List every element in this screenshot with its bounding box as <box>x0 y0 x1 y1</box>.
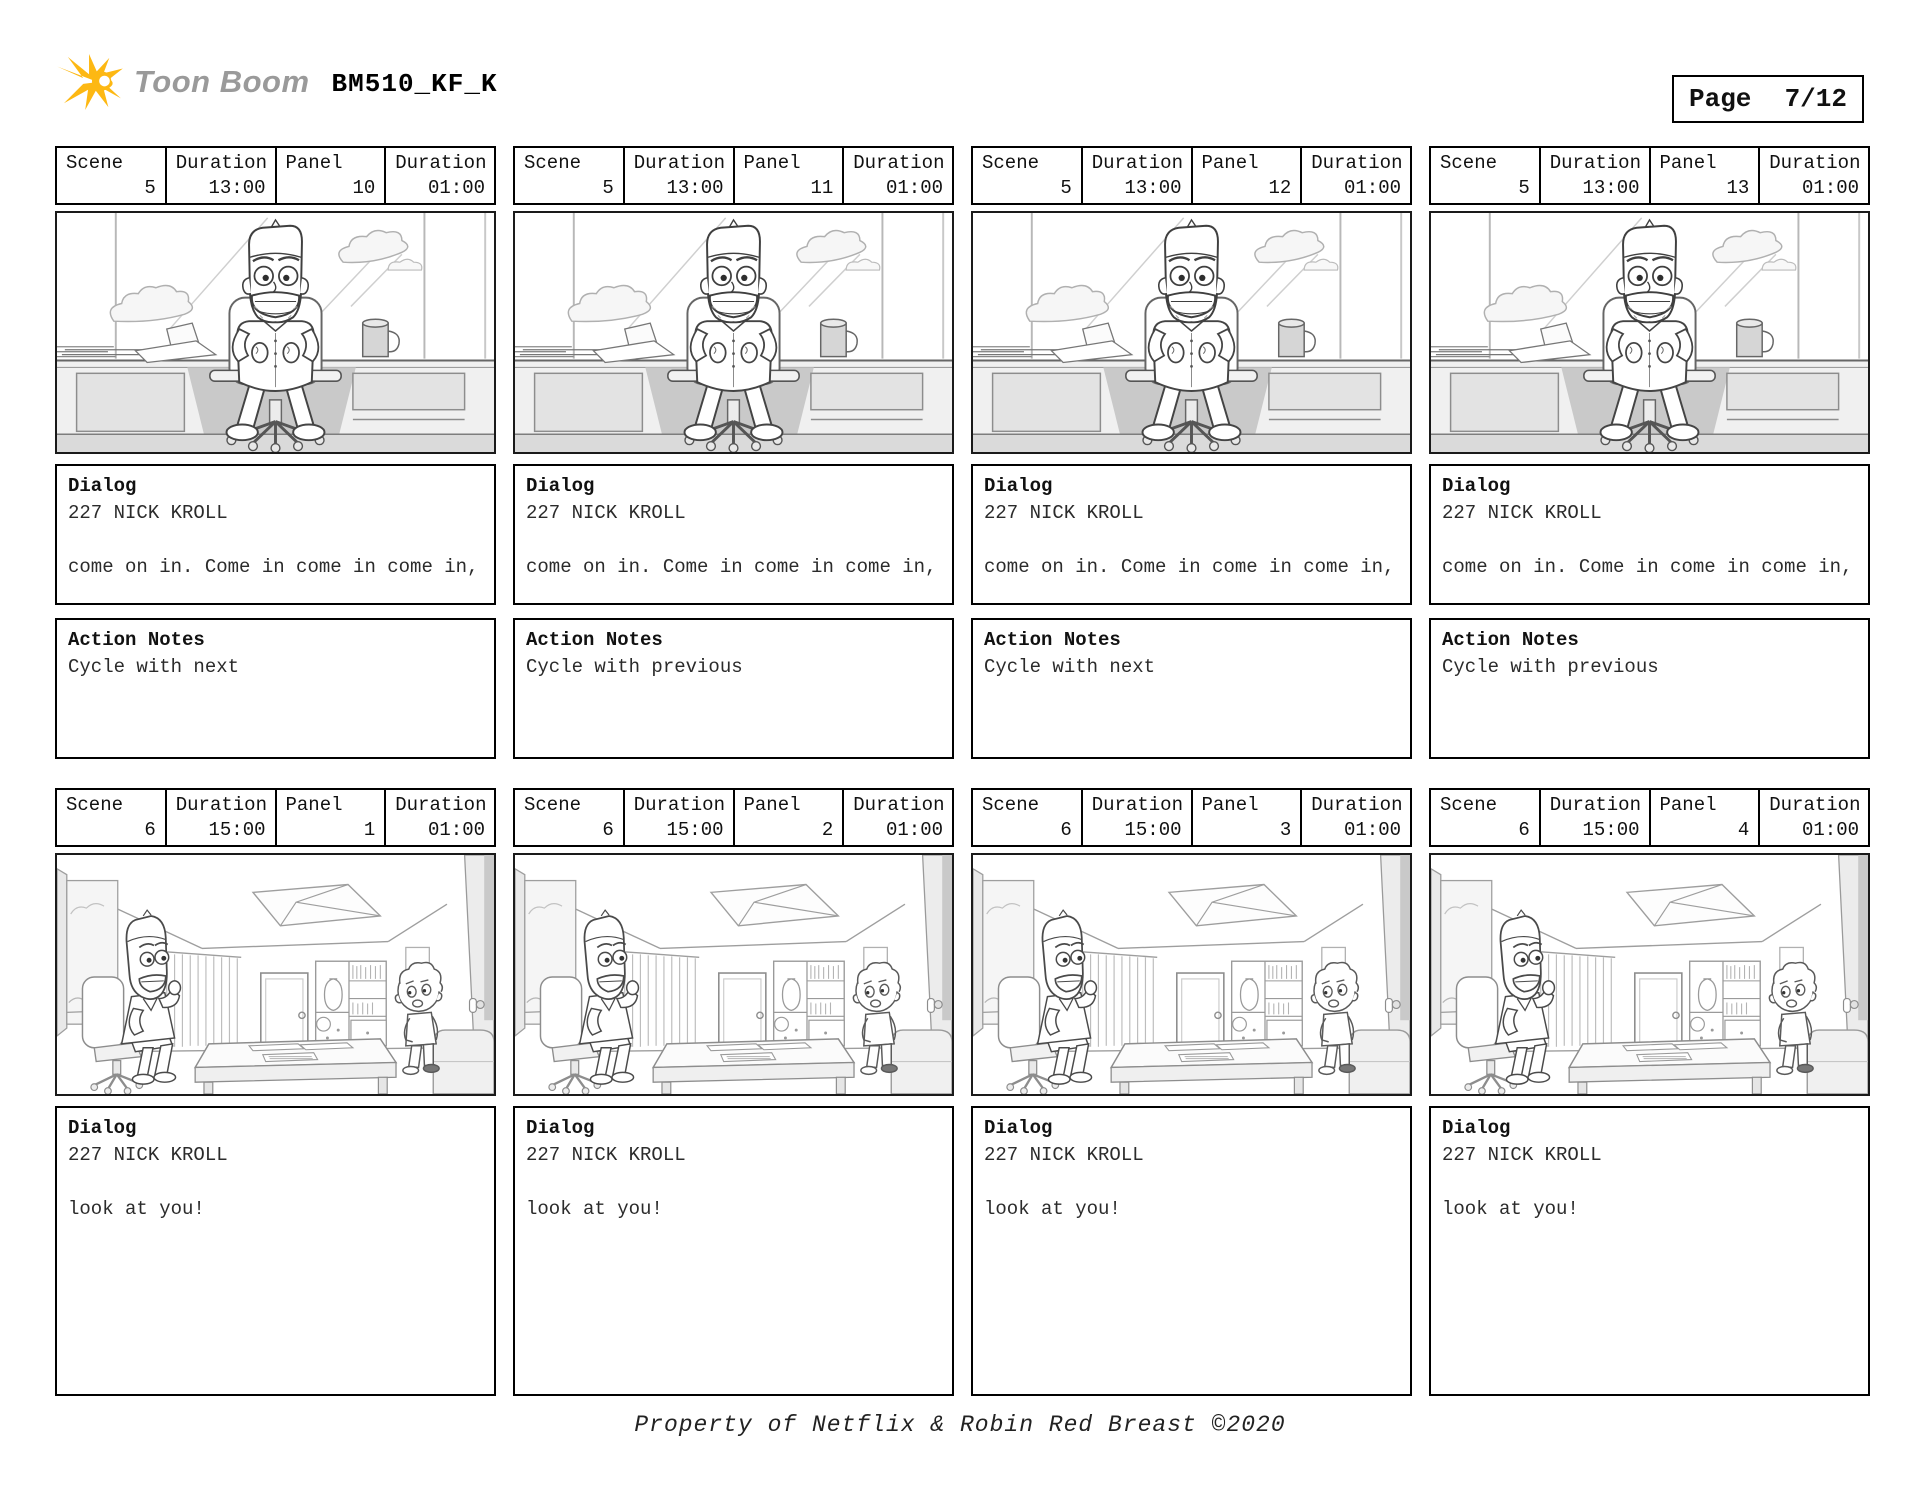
dialog-box: Dialog 227 NICK KROLL come on in. Come i… <box>971 464 1412 605</box>
action-notes-box: Action Notes Cycle with previous <box>1429 618 1870 759</box>
dialog-label: Dialog <box>526 473 941 500</box>
dialog-box: Dialog 227 NICK KROLL look at you! <box>1429 1106 1870 1396</box>
panel-meta-table: Scene 6 Duration 15:00 Panel 3 Duration … <box>971 788 1412 847</box>
desk-closeup-art <box>57 213 494 452</box>
panel-image <box>971 853 1412 1096</box>
duration-label: Duration <box>1311 793 1401 818</box>
action-notes-box: Action Notes Cycle with previous <box>513 618 954 759</box>
scene-duration-value: 15:00 <box>176 818 266 843</box>
panel-value: 4 <box>1660 818 1750 843</box>
dialog-label: Dialog <box>1442 1115 1857 1142</box>
dialog-text: 227 NICK KROLL come on in. Come in come … <box>526 500 941 581</box>
meta-cell-scene-duration: Duration 15:00 <box>623 790 733 845</box>
dialog-text: 227 NICK KROLL look at you! <box>1442 1142 1857 1223</box>
panel-artwork <box>1431 855 1868 1094</box>
desk-closeup-art <box>1431 213 1868 452</box>
meta-cell-panel-duration: Duration 01:00 <box>1758 148 1868 203</box>
panel-label: Panel <box>1202 793 1292 818</box>
panel-image <box>55 853 496 1096</box>
panel-artwork <box>1431 213 1868 452</box>
toonboom-logo-text: Toon Boom <box>134 64 310 100</box>
duration-label: Duration <box>395 151 485 176</box>
dialog-box: Dialog 227 NICK KROLL look at you! <box>55 1106 496 1396</box>
toonboom-logo: Toon Boom BM510_KF_K <box>52 54 498 110</box>
panel-value: 12 <box>1202 176 1292 201</box>
scene-duration-value: 13:00 <box>1092 176 1182 201</box>
panel-value: 2 <box>744 818 834 843</box>
panel-value: 1 <box>286 818 376 843</box>
panel-image <box>513 853 954 1096</box>
panel-row-2: Scene 6 Duration 15:00 Panel 1 Duration … <box>55 788 1870 1396</box>
duration-label: Duration <box>853 793 943 818</box>
action-notes-text: Cycle with previous <box>526 654 941 681</box>
panel-artwork <box>515 855 952 1094</box>
dialog-label: Dialog <box>984 473 1399 500</box>
copyright-footer: Property of Netflix & Robin Red Breast ©… <box>0 1412 1920 1438</box>
panel-meta-table: Scene 6 Duration 15:00 Panel 2 Duration … <box>513 788 954 847</box>
panel-meta-table: Scene 6 Duration 15:00 Panel 1 Duration … <box>55 788 496 847</box>
panel-label: Panel <box>286 793 376 818</box>
dialog-text: 227 NICK KROLL look at you! <box>984 1142 1399 1223</box>
dialog-label: Dialog <box>984 1115 1399 1142</box>
panel-meta-table: Scene 5 Duration 13:00 Panel 12 Duration… <box>971 146 1412 205</box>
scene-value: 5 <box>524 176 614 201</box>
storyboard-panel: Scene 5 Duration 13:00 Panel 10 Duration… <box>55 146 496 759</box>
dialog-text: 227 NICK KROLL come on in. Come in come … <box>1442 500 1857 581</box>
storyboard-panel: Scene 6 Duration 15:00 Panel 3 Duration … <box>971 788 1412 1396</box>
dialog-label: Dialog <box>68 1115 483 1142</box>
panel-row-1: Scene 5 Duration 13:00 Panel 10 Duration… <box>55 146 1870 759</box>
meta-cell-panel: Panel 12 <box>1191 148 1301 203</box>
storyboard-panel: Scene 6 Duration 15:00 Panel 2 Duration … <box>513 788 954 1396</box>
storyboard-panel: Scene 6 Duration 15:00 Panel 4 Duration … <box>1429 788 1870 1396</box>
meta-cell-scene: Scene 6 <box>515 790 623 845</box>
meta-cell-panel: Panel 3 <box>1191 790 1301 845</box>
office-wide-art <box>515 855 952 1094</box>
action-notes-box: Action Notes Cycle with next <box>971 618 1412 759</box>
panel-duration-value: 01:00 <box>1311 818 1401 843</box>
page-number-box: Page 7/12 <box>1672 75 1864 123</box>
dialog-box: Dialog 227 NICK KROLL look at you! <box>971 1106 1412 1396</box>
scene-value: 6 <box>66 818 156 843</box>
scene-label: Scene <box>524 793 614 818</box>
action-notes-label: Action Notes <box>526 627 941 654</box>
meta-cell-panel-duration: Duration 01:00 <box>1758 790 1868 845</box>
scene-value: 6 <box>524 818 614 843</box>
panel-meta-table: Scene 5 Duration 13:00 Panel 13 Duration… <box>1429 146 1870 205</box>
duration-label: Duration <box>634 793 724 818</box>
panel-label: Panel <box>286 151 376 176</box>
duration-label: Duration <box>1550 151 1640 176</box>
panel-value: 11 <box>744 176 834 201</box>
document-title: BM510_KF_K <box>332 65 498 99</box>
panel-artwork <box>57 855 494 1094</box>
duration-label: Duration <box>634 151 724 176</box>
action-notes-label: Action Notes <box>68 627 483 654</box>
action-notes-text: Cycle with next <box>68 654 483 681</box>
dialog-box: Dialog 227 NICK KROLL come on in. Come i… <box>513 464 954 605</box>
meta-cell-panel: Panel 4 <box>1649 790 1759 845</box>
scene-label: Scene <box>982 793 1072 818</box>
meta-cell-scene: Scene 6 <box>57 790 165 845</box>
panel-artwork <box>57 213 494 452</box>
meta-cell-panel-duration: Duration 01:00 <box>1300 790 1410 845</box>
meta-cell-scene: Scene 5 <box>57 148 165 203</box>
panel-value: 13 <box>1660 176 1750 201</box>
dialog-label: Dialog <box>1442 473 1857 500</box>
action-notes-label: Action Notes <box>1442 627 1857 654</box>
panel-image <box>971 211 1412 454</box>
duration-label: Duration <box>1092 151 1182 176</box>
panel-duration-value: 01:00 <box>395 176 485 201</box>
meta-cell-scene: Scene 5 <box>515 148 623 203</box>
panel-image <box>1429 853 1870 1096</box>
desk-closeup-art <box>973 213 1410 452</box>
panel-duration-value: 01:00 <box>1769 176 1859 201</box>
meta-cell-scene-duration: Duration 15:00 <box>1081 790 1191 845</box>
dialog-box: Dialog 227 NICK KROLL come on in. Come i… <box>1429 464 1870 605</box>
scene-duration-value: 15:00 <box>1550 818 1640 843</box>
panel-label: Panel <box>744 151 834 176</box>
scene-label: Scene <box>66 793 156 818</box>
toonboom-starburst-icon <box>52 54 128 110</box>
panel-artwork <box>973 213 1410 452</box>
dialog-box: Dialog 227 NICK KROLL come on in. Come i… <box>55 464 496 605</box>
meta-cell-scene: Scene 5 <box>973 148 1081 203</box>
office-wide-art <box>57 855 494 1094</box>
meta-cell-scene: Scene 5 <box>1431 148 1539 203</box>
meta-cell-panel-duration: Duration 01:00 <box>1300 148 1410 203</box>
meta-cell-scene-duration: Duration 13:00 <box>165 148 275 203</box>
storyboard-panel: Scene 5 Duration 13:00 Panel 11 Duration… <box>513 146 954 759</box>
storyboard-panel: Scene 5 Duration 13:00 Panel 12 Duration… <box>971 146 1412 759</box>
scene-duration-value: 13:00 <box>634 176 724 201</box>
action-notes-box: Action Notes Cycle with next <box>55 618 496 759</box>
action-notes-label: Action Notes <box>984 627 1399 654</box>
meta-cell-panel: Panel 13 <box>1649 148 1759 203</box>
duration-label: Duration <box>1311 151 1401 176</box>
panel-value: 3 <box>1202 818 1292 843</box>
panel-duration-value: 01:00 <box>853 818 943 843</box>
duration-label: Duration <box>853 151 943 176</box>
panel-value: 10 <box>286 176 376 201</box>
panel-label: Panel <box>744 793 834 818</box>
scene-value: 5 <box>66 176 156 201</box>
meta-cell-panel: Panel 10 <box>275 148 385 203</box>
panel-meta-table: Scene 5 Duration 13:00 Panel 11 Duration… <box>513 146 954 205</box>
scene-duration-value: 13:00 <box>176 176 266 201</box>
duration-label: Duration <box>1092 793 1182 818</box>
dialog-label: Dialog <box>68 473 483 500</box>
panel-duration-value: 01:00 <box>395 818 485 843</box>
meta-cell-scene: Scene 6 <box>1431 790 1539 845</box>
duration-label: Duration <box>176 793 266 818</box>
dialog-text: 227 NICK KROLL come on in. Come in come … <box>68 500 483 581</box>
dialog-text: 227 NICK KROLL look at you! <box>68 1142 483 1223</box>
meta-cell-panel: Panel 1 <box>275 790 385 845</box>
panel-meta-table: Scene 5 Duration 13:00 Panel 10 Duration… <box>55 146 496 205</box>
panel-image <box>55 211 496 454</box>
meta-cell-scene-duration: Duration 13:00 <box>1081 148 1191 203</box>
meta-cell-panel: Panel 11 <box>733 148 843 203</box>
scene-label: Scene <box>982 151 1072 176</box>
scene-value: 6 <box>1440 818 1530 843</box>
panel-duration-value: 01:00 <box>853 176 943 201</box>
panel-duration-value: 01:00 <box>1311 176 1401 201</box>
page-value: 7/12 <box>1785 84 1847 114</box>
panel-label: Panel <box>1202 151 1292 176</box>
panel-label: Panel <box>1660 793 1750 818</box>
scene-value: 5 <box>1440 176 1530 201</box>
dialog-label: Dialog <box>526 1115 941 1142</box>
panel-artwork <box>515 213 952 452</box>
office-wide-art <box>973 855 1410 1094</box>
scene-value: 6 <box>982 818 1072 843</box>
scene-label: Scene <box>1440 793 1530 818</box>
scene-label: Scene <box>66 151 156 176</box>
scene-duration-value: 13:00 <box>1550 176 1640 201</box>
scene-label: Scene <box>524 151 614 176</box>
panel-artwork <box>973 855 1410 1094</box>
copyright-text: Property of Netflix & Robin Red Breast ©… <box>634 1412 1285 1438</box>
meta-cell-scene-duration: Duration 15:00 <box>165 790 275 845</box>
panel-meta-table: Scene 6 Duration 15:00 Panel 4 Duration … <box>1429 788 1870 847</box>
storyboard-panel: Scene 6 Duration 15:00 Panel 1 Duration … <box>55 788 496 1396</box>
dialog-text: 227 NICK KROLL look at you! <box>526 1142 941 1223</box>
meta-cell-panel: Panel 2 <box>733 790 843 845</box>
panel-label: Panel <box>1660 151 1750 176</box>
panel-image <box>1429 211 1870 454</box>
panel-duration-value: 01:00 <box>1769 818 1859 843</box>
page-label: Page <box>1689 84 1751 114</box>
meta-cell-panel-duration: Duration 01:00 <box>842 790 952 845</box>
meta-cell-scene-duration: Duration 15:00 <box>1539 790 1649 845</box>
storyboard-panel: Scene 5 Duration 13:00 Panel 13 Duration… <box>1429 146 1870 759</box>
scene-value: 5 <box>982 176 1072 201</box>
meta-cell-scene-duration: Duration 13:00 <box>623 148 733 203</box>
duration-label: Duration <box>395 793 485 818</box>
duration-label: Duration <box>1769 151 1859 176</box>
scene-label: Scene <box>1440 151 1530 176</box>
meta-cell-scene: Scene 6 <box>973 790 1081 845</box>
duration-label: Duration <box>1550 793 1640 818</box>
action-notes-text: Cycle with previous <box>1442 654 1857 681</box>
duration-label: Duration <box>176 151 266 176</box>
desk-closeup-art <box>515 213 952 452</box>
duration-label: Duration <box>1769 793 1859 818</box>
scene-duration-value: 15:00 <box>1092 818 1182 843</box>
meta-cell-panel-duration: Duration 01:00 <box>842 148 952 203</box>
meta-cell-scene-duration: Duration 13:00 <box>1539 148 1649 203</box>
meta-cell-panel-duration: Duration 01:00 <box>384 790 494 845</box>
dialog-box: Dialog 227 NICK KROLL look at you! <box>513 1106 954 1396</box>
scene-duration-value: 15:00 <box>634 818 724 843</box>
panel-image <box>513 211 954 454</box>
meta-cell-panel-duration: Duration 01:00 <box>384 148 494 203</box>
action-notes-text: Cycle with next <box>984 654 1399 681</box>
dialog-text: 227 NICK KROLL come on in. Come in come … <box>984 500 1399 581</box>
office-wide-art <box>1431 855 1868 1094</box>
